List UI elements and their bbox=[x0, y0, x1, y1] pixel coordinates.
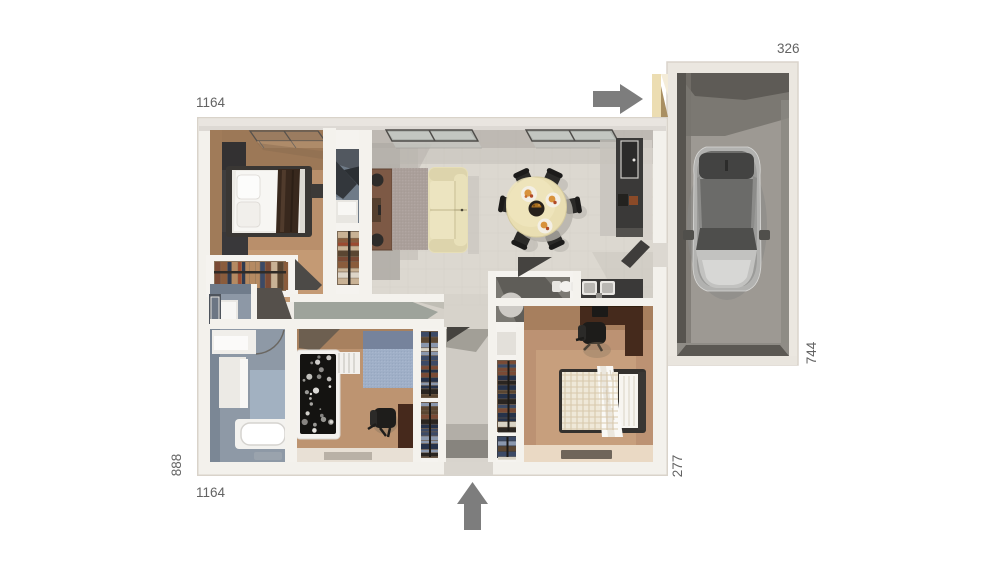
svg-text:326: 326 bbox=[777, 41, 800, 56]
svg-text:1164: 1164 bbox=[196, 485, 226, 500]
svg-text:1164: 1164 bbox=[196, 95, 226, 110]
svg-text:744: 744 bbox=[804, 341, 819, 364]
svg-text:277: 277 bbox=[670, 455, 685, 478]
svg-text:888: 888 bbox=[169, 454, 184, 477]
